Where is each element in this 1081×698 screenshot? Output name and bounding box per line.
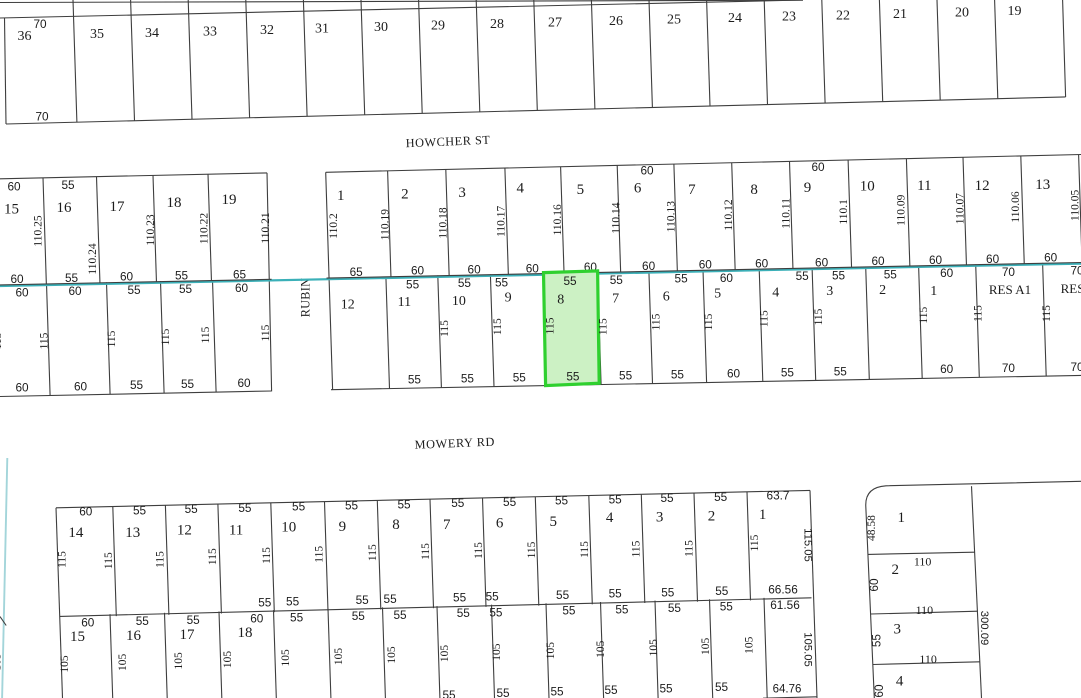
svg-text:55: 55 [451,496,465,510]
svg-text:55: 55 [671,367,685,381]
svg-text:115: 115 [207,548,219,565]
svg-text:16: 16 [126,628,142,644]
svg-text:55: 55 [659,682,673,696]
svg-text:55: 55 [566,369,580,383]
svg-text:5: 5 [550,514,558,530]
svg-text:55: 55 [458,276,472,290]
svg-text:60: 60 [699,258,713,272]
svg-text:55: 55 [185,502,199,516]
svg-text:115: 115 [1041,305,1053,322]
svg-text:110.14: 110.14 [611,202,623,233]
svg-text:55: 55 [356,593,370,607]
svg-text:55: 55 [661,585,675,599]
svg-text:55: 55 [781,365,795,379]
svg-text:10: 10 [860,179,875,195]
svg-text:70: 70 [1070,264,1081,278]
svg-text:9: 9 [339,519,347,535]
svg-text:60: 60 [7,180,21,194]
svg-text:110.2: 110.2 [328,213,340,239]
svg-text:60: 60 [79,505,93,519]
svg-text:55: 55 [720,600,734,614]
svg-text:300.09: 300.09 [978,611,990,646]
svg-text:23: 23 [782,10,796,25]
svg-text:6: 6 [496,516,504,532]
svg-text:55: 55 [408,372,422,386]
svg-text:70: 70 [1070,360,1081,374]
svg-text:110.11: 110.11 [781,198,793,229]
svg-text:34: 34 [145,26,159,41]
svg-text:55: 55 [668,601,682,615]
svg-text:55: 55 [714,490,728,504]
svg-text:13: 13 [125,525,140,541]
svg-text:61.56: 61.56 [770,598,800,612]
svg-text:14: 14 [68,525,84,541]
svg-text:4: 4 [896,674,904,690]
svg-text:3: 3 [894,622,902,638]
svg-text:55: 55 [179,282,193,296]
svg-text:55: 55 [562,604,576,618]
svg-text:115: 115 [544,317,556,334]
svg-text:55: 55 [461,371,475,385]
svg-text:55: 55 [393,608,407,622]
svg-text:55: 55 [286,595,300,609]
svg-text:55: 55 [513,370,527,384]
svg-text:8: 8 [557,292,564,307]
svg-text:66.56: 66.56 [768,583,798,597]
svg-text:55: 55 [604,683,618,697]
svg-text:105: 105 [333,648,345,666]
svg-text:12: 12 [341,298,355,313]
svg-text:60: 60 [940,362,954,376]
svg-text:1: 1 [898,510,906,526]
svg-text:115: 115 [439,320,451,337]
svg-text:110: 110 [919,652,937,666]
svg-text:115: 115 [972,305,984,322]
svg-text:115: 115 [57,551,69,568]
svg-text:115: 115 [367,544,379,561]
svg-text:55: 55 [442,688,456,698]
svg-text:115: 115 [749,534,761,551]
svg-text:5: 5 [577,182,585,198]
svg-text:55: 55 [495,275,509,289]
svg-text:60: 60 [640,164,654,178]
svg-text:6: 6 [634,180,642,196]
svg-text:16: 16 [57,200,73,216]
svg-text:2: 2 [879,283,886,298]
svg-text:55: 55 [65,271,79,285]
svg-text:15: 15 [4,202,19,218]
svg-text:2: 2 [708,508,716,524]
svg-text:21: 21 [893,7,907,22]
svg-text:12: 12 [975,178,990,194]
svg-text:55: 55 [397,497,411,511]
svg-text:115: 115 [631,540,643,557]
svg-text:110.23: 110.23 [145,214,157,245]
svg-text:115: 115 [918,307,930,324]
svg-text:110.22: 110.22 [199,213,211,244]
svg-text:60: 60 [815,255,829,269]
svg-text:4: 4 [606,510,614,526]
svg-text:105: 105 [648,639,660,657]
svg-text:60: 60 [237,376,251,390]
svg-text:55: 55 [715,680,729,694]
svg-text:105: 105 [280,649,292,667]
svg-text:115: 115 [160,328,172,345]
svg-text:55: 55 [136,614,150,628]
svg-text:11: 11 [917,178,931,194]
svg-text:105: 105 [117,654,129,672]
svg-text:60: 60 [727,366,741,380]
svg-text:115: 115 [703,313,715,330]
svg-text:1: 1 [337,188,345,204]
svg-text:115: 115 [39,332,51,349]
svg-text:10: 10 [452,294,466,309]
svg-text:60: 60 [755,257,769,271]
svg-text:55: 55 [127,283,141,297]
svg-text:70: 70 [33,17,47,31]
svg-text:24: 24 [728,11,742,26]
svg-text:115: 115 [526,541,538,558]
svg-text:11: 11 [398,295,411,310]
svg-text:105: 105 [439,645,451,663]
svg-text:115: 115 [683,540,695,557]
svg-text:105.05: 105.05 [802,632,814,667]
svg-text:5: 5 [714,287,721,302]
svg-text:60: 60 [811,160,825,174]
svg-text:110.24: 110.24 [87,243,99,274]
svg-text:31: 31 [315,22,329,37]
svg-text:55: 55 [457,606,471,620]
svg-text:RES: RES [1061,281,1081,296]
svg-text:60: 60 [15,381,29,395]
svg-text:19: 19 [1008,4,1022,19]
svg-text:55: 55 [292,500,306,514]
svg-text:110.05: 110.05 [1070,190,1081,221]
svg-text:60: 60 [120,270,134,284]
svg-text:110.25: 110.25 [33,215,45,246]
svg-text:33: 33 [203,24,217,39]
svg-text:7: 7 [443,517,451,533]
svg-text:55: 55 [870,634,884,648]
svg-text:55: 55 [796,269,810,283]
svg-text:60: 60 [720,271,734,285]
svg-text:115: 115 [759,310,771,327]
svg-text:55: 55 [610,273,624,287]
svg-text:55: 55 [61,178,75,192]
svg-text:9: 9 [505,290,512,305]
svg-text:25: 25 [667,13,681,28]
svg-text:55: 55 [290,610,304,624]
svg-text:115: 115 [420,543,432,560]
svg-text:70: 70 [1002,265,1016,279]
svg-text:60: 60 [872,684,886,698]
svg-text:7: 7 [688,182,696,198]
svg-text:115: 115 [260,324,272,341]
svg-text:60: 60 [10,272,24,286]
svg-text:55: 55 [503,495,517,509]
svg-text:32: 32 [260,23,274,38]
svg-text:105: 105 [0,653,4,671]
svg-text:MOWERY RD: MOWERY RD [414,435,495,452]
svg-text:105: 105 [59,655,71,673]
svg-text:55: 55 [258,595,272,609]
svg-text:1: 1 [759,507,767,523]
svg-text:115: 115 [155,551,167,568]
svg-text:65: 65 [350,265,364,279]
svg-text:115.05: 115.05 [802,528,814,562]
svg-text:60: 60 [940,266,954,280]
svg-text:110.21: 110.21 [260,212,272,243]
svg-text:55: 55 [715,584,729,598]
svg-text:70: 70 [35,110,49,124]
svg-text:115: 115 [314,546,326,563]
svg-text:60: 60 [74,379,88,393]
svg-text:105: 105 [491,643,503,661]
svg-text:2: 2 [891,562,899,578]
svg-text:55: 55 [187,613,201,627]
svg-text:55: 55 [133,503,147,517]
svg-text:55: 55 [486,590,500,604]
svg-text:63.7: 63.7 [767,489,790,503]
svg-text:115: 115 [473,542,485,559]
svg-text:55: 55 [550,685,564,698]
svg-text:29: 29 [431,19,445,34]
svg-text:55: 55 [345,499,359,513]
svg-text:35: 35 [90,27,104,42]
svg-text:17: 17 [110,199,126,215]
svg-text:55: 55 [660,491,674,505]
svg-text:19: 19 [222,192,237,208]
svg-text:4: 4 [517,180,525,196]
svg-text:105: 105 [700,638,712,656]
svg-text:9: 9 [804,180,812,196]
svg-text:22: 22 [836,8,850,23]
svg-text:115: 115 [650,313,662,330]
svg-text:60: 60 [929,253,943,267]
svg-text:20: 20 [955,5,969,20]
svg-text:115: 115 [597,318,609,335]
svg-text:12: 12 [177,523,192,539]
svg-text:4: 4 [772,286,779,301]
svg-text:13: 13 [1035,177,1050,193]
svg-text:15: 15 [70,629,85,645]
svg-text:105: 105 [545,642,557,660]
svg-text:55: 55 [181,377,195,391]
svg-text:110.07: 110.07 [955,193,967,224]
svg-text:55: 55 [489,605,503,619]
svg-text:55: 55 [563,274,577,288]
svg-text:110.09: 110.09 [896,194,908,225]
svg-text:30: 30 [374,20,388,35]
svg-text:HOWCHER ST: HOWCHER ST [405,133,490,150]
svg-text:18: 18 [167,195,182,211]
svg-text:110.13: 110.13 [666,201,678,232]
svg-text:60: 60 [250,611,264,625]
svg-text:110.17: 110.17 [496,205,508,236]
svg-text:7: 7 [612,291,619,306]
svg-text:55: 55 [406,277,420,291]
svg-text:115: 115 [813,308,825,325]
svg-text:55: 55 [834,364,848,378]
svg-text:RES A1: RES A1 [989,282,1031,297]
svg-text:115: 115 [492,318,504,335]
svg-text:55: 55 [884,267,898,281]
svg-text:2: 2 [401,187,409,203]
svg-text:55: 55 [453,591,467,605]
svg-text:RUBIN: RUBIN [299,278,313,317]
svg-text:60: 60 [871,254,885,268]
svg-text:60: 60 [15,285,29,299]
svg-text:55: 55 [615,602,629,616]
svg-text:36: 36 [18,29,32,44]
svg-text:55: 55 [609,587,623,601]
svg-text:8: 8 [750,182,758,198]
svg-text:55: 55 [496,686,510,698]
svg-text:115: 115 [200,326,212,343]
svg-text:70: 70 [1002,361,1016,375]
svg-text:18: 18 [238,625,253,641]
svg-text:110.16: 110.16 [552,204,564,235]
svg-text:110: 110 [914,554,932,568]
svg-text:115: 115 [106,330,118,347]
svg-text:60: 60 [68,284,82,298]
svg-text:3: 3 [458,185,466,201]
svg-text:55: 55 [175,269,189,283]
svg-text:55: 55 [619,368,633,382]
svg-text:55: 55 [352,609,366,623]
svg-text:6: 6 [663,290,670,305]
svg-text:110: 110 [916,603,934,617]
svg-text:65: 65 [233,267,247,281]
svg-text:115: 115 [579,541,591,558]
svg-text:26: 26 [609,14,623,29]
svg-text:28: 28 [490,17,504,32]
svg-text:110.19: 110.19 [380,209,392,240]
svg-text:105: 105 [743,636,755,654]
svg-text:55: 55 [238,501,252,515]
svg-text:17: 17 [180,627,196,643]
svg-text:55: 55 [609,492,623,506]
svg-text:48.58: 48.58 [866,515,878,541]
svg-text:3: 3 [826,284,833,299]
svg-text:105: 105 [173,652,185,670]
svg-text:55: 55 [555,494,569,508]
svg-text:60: 60 [867,578,881,592]
svg-text:10: 10 [281,520,296,536]
svg-text:110.1: 110.1 [838,199,850,225]
svg-text:55: 55 [832,268,846,282]
svg-text:115: 115 [0,332,4,349]
svg-text:105: 105 [386,646,398,664]
svg-text:105: 105 [222,651,234,669]
svg-text:55: 55 [675,272,689,286]
svg-text:60: 60 [81,616,95,630]
svg-text:115: 115 [261,547,273,564]
svg-text:11: 11 [229,523,243,539]
svg-text:60: 60 [235,281,249,295]
svg-text:110.06: 110.06 [1010,191,1022,222]
svg-text:110.18: 110.18 [438,207,450,238]
svg-text:8: 8 [392,517,400,533]
svg-text:55: 55 [130,378,144,392]
svg-text:55: 55 [556,588,570,602]
svg-text:105: 105 [595,640,607,658]
svg-text:1: 1 [930,284,937,299]
svg-text:110.12: 110.12 [723,199,735,230]
svg-text:64.76: 64.76 [773,684,802,696]
svg-text:115: 115 [103,552,115,569]
svg-text:27: 27 [548,16,562,31]
svg-text:55: 55 [384,592,398,606]
svg-text:3: 3 [656,509,664,525]
